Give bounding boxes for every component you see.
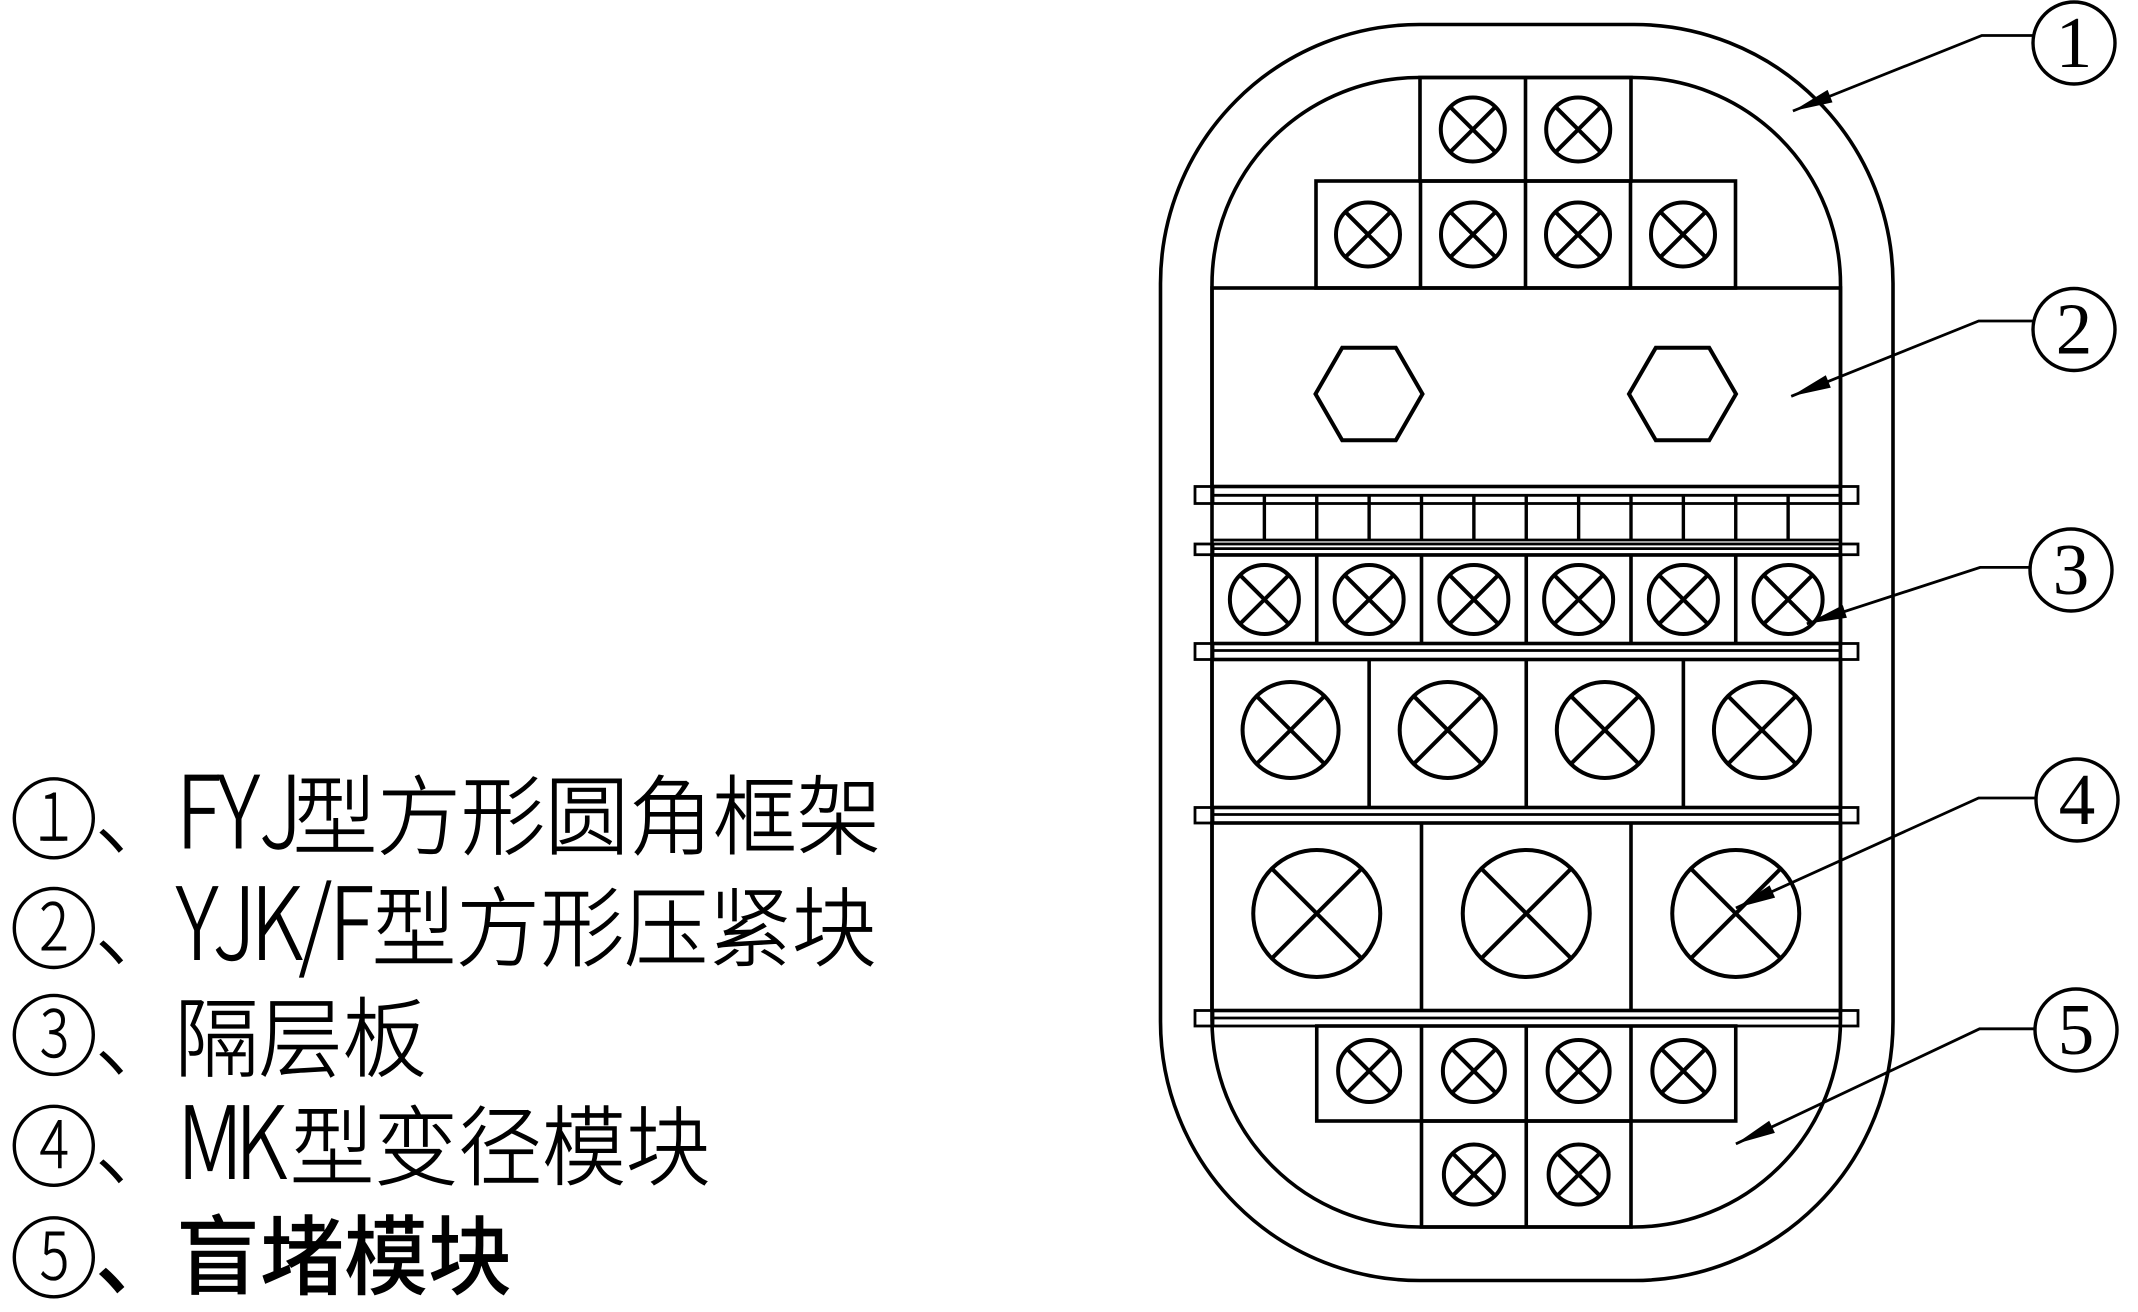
svg-text:2: 2 (2056, 289, 2093, 370)
svg-text:5: 5 (2058, 989, 2095, 1070)
svg-text:3: 3 (2053, 529, 2090, 610)
svg-text:4: 4 (2059, 759, 2096, 840)
svg-text:1: 1 (2056, 2, 2093, 83)
